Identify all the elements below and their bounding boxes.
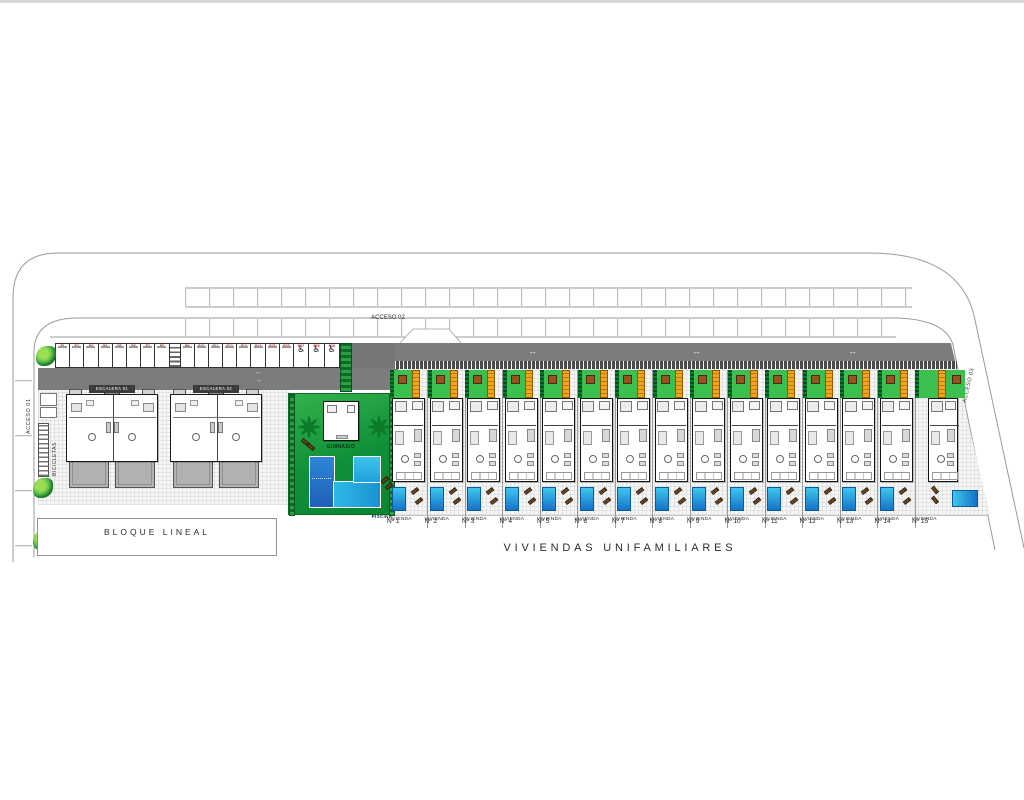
wheelchair-icon: ♿: [312, 344, 320, 354]
parking-stall: P9: [181, 344, 195, 367]
parking-walkway: [170, 344, 181, 367]
parking-stall: P13: [237, 344, 251, 367]
parking-stall: P16: [280, 344, 294, 367]
two-way-arrow-icon: ↔: [692, 346, 701, 356]
utility-room: [40, 393, 57, 406]
parking-stall: P1: [56, 344, 70, 367]
parking-stall: P10: [195, 344, 209, 367]
parking-stall: P14: [251, 344, 265, 367]
parking-stall: P7: [141, 344, 155, 367]
parking-stall: P15: [266, 344, 280, 367]
parking-stall: P6: [127, 344, 141, 367]
linear-block-outline: BLOQUE LINEAL: [37, 518, 277, 556]
hedge-strip: [389, 394, 395, 516]
parking-stall: P2: [70, 344, 84, 367]
site-plan: ← → ↔ ↔ ↔ P1P2P3P4P5P6P7P8P9P10P11P12P13…: [0, 0, 1024, 800]
arrow-right-icon: →: [255, 377, 262, 385]
hedge-strip: [340, 343, 352, 392]
two-way-arrow-icon: ↔: [848, 346, 857, 356]
pool-label: PISCINA: [360, 514, 404, 519]
palm-tree-icon: [366, 414, 392, 440]
palm-tree-icon: [296, 414, 322, 440]
parking-stall: P11: [209, 344, 223, 367]
parking-stall-handicap: P19♿: [325, 344, 340, 367]
linear-block-label: BLOQUE LINEAL: [38, 527, 276, 537]
boundary-wall-hatch: [395, 361, 957, 369]
villa-plot-ground: [390, 358, 995, 515]
bicycle-rack: [38, 423, 49, 477]
parking-stall: P12: [223, 344, 237, 367]
parking-stall-handicap: P17♿: [294, 344, 309, 367]
apartment-plot-ground: [38, 390, 290, 505]
parking-stall: P5: [113, 344, 127, 367]
direction-arrows-icon: ← →: [240, 369, 270, 377]
access-01-label: ACCESO 01: [26, 378, 32, 434]
direction-arrows-icon: [125, 369, 155, 377]
access-02-label: ACCESO 02: [360, 315, 416, 321]
bicycles-label: BICICLETAS: [52, 416, 58, 476]
gym-building: [323, 401, 359, 441]
wheelchair-icon: ♿: [328, 344, 336, 354]
page-title: VIVIENDAS UNIFAMILIARES: [340, 542, 900, 554]
parking-stall: P8: [155, 344, 169, 367]
wheelchair-icon: ♿: [297, 344, 305, 354]
parking-stall: P3: [84, 344, 98, 367]
two-way-arrow-icon: ↔: [528, 346, 537, 356]
parking-stall: P4: [99, 344, 113, 367]
parking-stall-handicap: P18♿: [309, 344, 324, 367]
parking-row: P1P2P3P4P5P6P7P8P9P10P11P12P13P14P15P16P…: [55, 343, 340, 368]
gym-label: GIMNASIO: [315, 444, 367, 450]
hedge-strip: [289, 394, 295, 516]
arrow-left-icon: ←: [255, 369, 262, 377]
community-pool: PISCINA: [309, 456, 381, 508]
pool-garden-zone: GIMNASIO PISCINA: [288, 393, 394, 515]
